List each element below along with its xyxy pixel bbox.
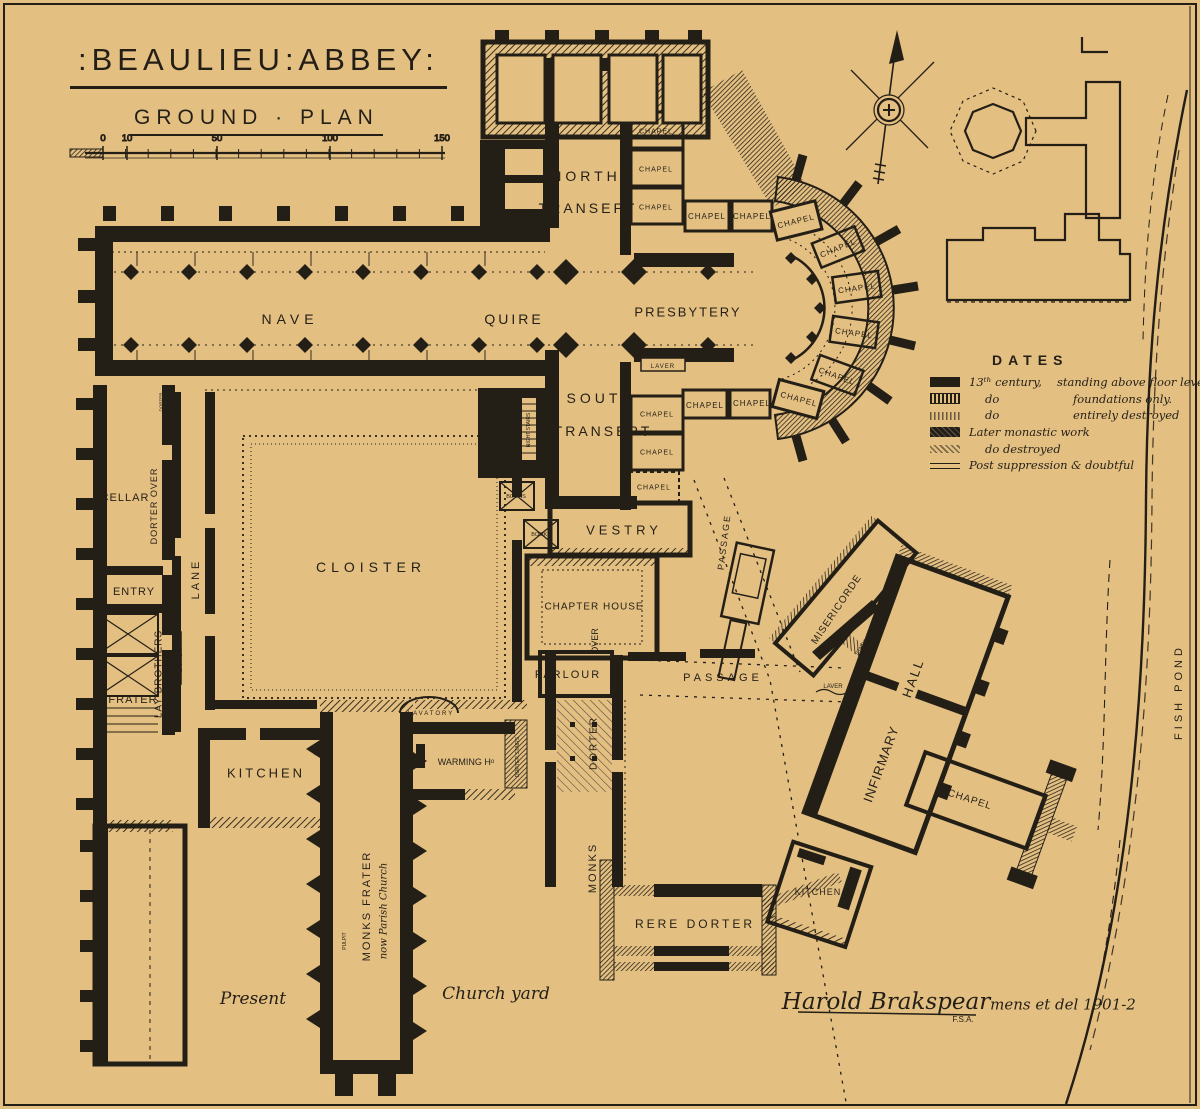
label-books: BOOKS: [531, 532, 551, 538]
sw-destroyed-swatch-icon: [930, 412, 960, 420]
label-fire: FIRE: [419, 754, 425, 766]
label-dorter: DORTER: [159, 392, 164, 412]
page-subtitle: GROUND · PLAN: [130, 106, 383, 136]
legend-item-do-destroyed: do destroyed: [930, 443, 1170, 456]
legend-item-post-suppression-doubtful: Post suppression & doubtful: [930, 459, 1170, 472]
label-transept: TRANSEPT: [539, 200, 638, 216]
label-kitchen: KITCHEN: [795, 887, 842, 897]
compass-rose: [846, 30, 934, 184]
legend-text: Later monastic work: [969, 426, 1090, 439]
legend-text: do: [969, 409, 1073, 422]
label-quire: QUIRE: [484, 311, 543, 327]
label-dorter: DORTER: [589, 716, 600, 770]
label-frater: FRATER: [108, 694, 157, 706]
label-passage: PASSAGE: [716, 513, 733, 570]
west-range: [76, 385, 185, 1064]
legend-text-2: foundations only.: [1073, 393, 1172, 406]
abbey-ground-plan: 01050100150: [0, 0, 1200, 1109]
label-chapel: CHAPEL: [733, 399, 771, 408]
legend-item-13-century: 13ᵗʰ century,standing above floor levels: [930, 376, 1170, 389]
sw-post-swatch-icon: [930, 463, 960, 469]
legend-text: do: [969, 393, 1073, 406]
legend-text-2: entirely destroyed: [1073, 409, 1179, 422]
sw-later-swatch-icon: [930, 427, 960, 437]
label-chapel: CHAPEL: [640, 449, 674, 456]
label-monks: MONKS: [587, 843, 599, 893]
dates-legend: DATES 13ᵗʰ century,standing above floor …: [930, 352, 1170, 476]
label-over: OVER: [590, 628, 600, 654]
label-transept: TRANSEPT: [554, 423, 653, 439]
east-range: [527, 503, 871, 980]
scale-bar: 01050100150: [70, 133, 450, 160]
label-chapel: CHAPEL: [686, 401, 724, 410]
label-now-parish-church: now Parish Church: [379, 863, 390, 960]
label-kitchen: KITCHEN: [227, 766, 305, 781]
lay-brothers-extension: [80, 826, 185, 1064]
scale-number-150: 150: [434, 133, 450, 144]
sw-solid-swatch-icon: [930, 377, 960, 387]
legend-item-later-monastic-work: Later monastic work: [930, 426, 1170, 439]
label-dorter-stairs: DORTER STAIRS: [515, 736, 521, 777]
label-f-s-a: F.S.A.: [952, 1015, 973, 1024]
label-parlour: PARLOUR: [535, 669, 601, 681]
label-lavatory: LAVATORY: [408, 711, 454, 717]
label-chapel: CHAPEL: [637, 484, 671, 491]
north-arrow-icon: [889, 30, 904, 64]
label-dorter-over: DORTER OVER: [149, 468, 159, 545]
label-harold-brakspear: Harold Brakspear: [781, 989, 992, 1015]
label-north: NORTH: [551, 168, 621, 184]
label-chapel: CHAPEL: [946, 788, 993, 813]
label-chapel: CHAPEL: [639, 128, 673, 135]
page-title: :BEAULIEU:ABBEY:: [70, 42, 447, 89]
label-rere-dorter: RERE DORTER: [635, 917, 755, 931]
label-passage: PASSAGE: [683, 672, 763, 684]
legend-title: DATES: [992, 352, 1170, 368]
inset-plan: [947, 37, 1130, 302]
label-chapel: CHAPEL: [733, 212, 771, 221]
infirmary-hall: [804, 545, 1023, 856]
label-night-stairs: NIGHT STAIRS: [526, 412, 532, 447]
label-books: BOOKS: [506, 494, 526, 500]
label-chapel: CHAPEL: [639, 204, 673, 211]
label-chapel: CHAPEL: [640, 411, 674, 418]
label-warming-h: WARMING Hᵒ: [438, 757, 495, 767]
legend-item-do: dofoundations only.: [930, 393, 1170, 406]
label-pulpit: PULPIT: [342, 932, 348, 950]
label-lavatory: LAVATORY: [178, 646, 184, 672]
cloister-court: [174, 392, 527, 713]
sw-found-swatch-icon: [930, 393, 960, 404]
nave-north-buttresses: [103, 206, 522, 221]
label-chapel: CHAPEL: [639, 166, 673, 173]
label-presbytery: PRESBYTERY: [634, 305, 741, 320]
label-laver: LAVER: [651, 364, 675, 370]
label-entry: ENTRY: [113, 586, 155, 598]
sw-later-destroyed-swatch-icon: [930, 445, 960, 453]
label-cloister: CLOISTER: [316, 559, 426, 575]
label-monks-frater: MONKS FRATER: [361, 851, 373, 962]
label-present: Present: [219, 989, 286, 1009]
legend-text: do destroyed: [969, 443, 1061, 456]
plan-drawing: 01050100150: [0, 0, 1200, 1109]
label-fish-pond: FISH POND: [1173, 644, 1185, 740]
label-chapel: CHAPEL: [688, 212, 726, 221]
label-mens-et-del-1901-2: mens et del 1901-2: [990, 995, 1136, 1013]
legend-item-do: doentirely destroyed: [930, 409, 1170, 422]
label-lane: LANE: [190, 559, 202, 600]
label-south: SOUTH: [567, 390, 636, 406]
label-vestry: VESTRY: [586, 523, 662, 538]
legend-text-2: standing above floor levels: [1057, 376, 1200, 389]
label-laver: LAVER: [823, 684, 843, 690]
label-nave: NAVE: [261, 311, 318, 327]
label-hatch: HATCH: [314, 751, 333, 757]
legend-text: Post suppression & doubtful: [969, 459, 1134, 472]
label-infirmary: INFIRMARY: [860, 724, 902, 805]
label-chapter-house: CHAPTER HOUSE: [544, 602, 643, 613]
label-cellar: CELLAR: [101, 492, 150, 504]
infirmary-chapel: [894, 718, 1096, 896]
legend-text: 13ᵗʰ century,: [969, 376, 1057, 389]
scale-number-0: 0: [100, 133, 105, 144]
fish-pond-bank: [1066, 90, 1187, 1104]
label-church-yard: Church yard: [442, 984, 550, 1004]
